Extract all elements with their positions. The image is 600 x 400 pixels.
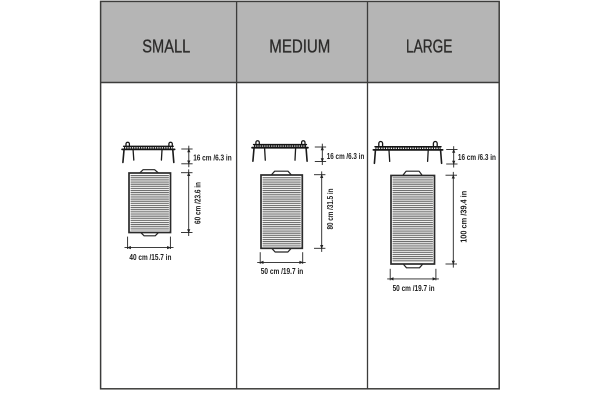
svg-text:16 cm /6.3 in: 16 cm /6.3 in xyxy=(458,152,496,162)
svg-text:50 cm /19.7 in: 50 cm /19.7 in xyxy=(261,266,304,276)
svg-text:MEDIUM: MEDIUM xyxy=(269,36,330,57)
svg-text:80 cm /31.5 in: 80 cm /31.5 in xyxy=(325,189,335,230)
svg-text:50 cm /19.7 in: 50 cm /19.7 in xyxy=(393,283,435,293)
svg-text:SMALL: SMALL xyxy=(142,36,190,57)
svg-text:100 cm /39.4 in: 100 cm /39.4 in xyxy=(459,191,469,243)
svg-text:16 cm /6.3 in: 16 cm /6.3 in xyxy=(327,151,365,161)
svg-text:60 cm /23.6 in: 60 cm /23.6 in xyxy=(192,182,202,224)
svg-text:LARGE: LARGE xyxy=(406,36,453,57)
svg-text:16 cm /6.3 in: 16 cm /6.3 in xyxy=(193,153,232,163)
svg-text:40 cm /15.7 in: 40 cm /15.7 in xyxy=(129,252,171,262)
